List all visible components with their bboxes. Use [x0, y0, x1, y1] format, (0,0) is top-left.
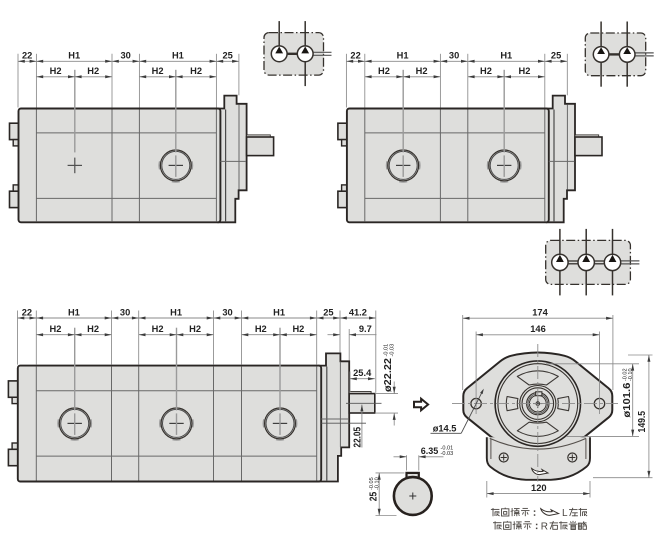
svg-text:-0.03: -0.03: [441, 451, 454, 457]
svg-text:9.7: 9.7: [359, 324, 372, 334]
svg-text:H2: H2: [378, 66, 390, 76]
svg-text:H2: H2: [50, 66, 62, 76]
svg-text:H1: H1: [500, 51, 512, 61]
svg-text:6.35: 6.35: [421, 446, 439, 456]
svg-text:H2: H2: [255, 324, 267, 334]
svg-text:H2: H2: [50, 324, 62, 334]
svg-text:H2: H2: [519, 66, 531, 76]
svg-text:H1: H1: [273, 307, 285, 317]
svg-text:41.2: 41.2: [349, 307, 367, 317]
svg-text:22: 22: [350, 51, 360, 61]
svg-text:120: 120: [531, 483, 547, 493]
svg-text:25.4: 25.4: [353, 368, 372, 378]
svg-text:25: 25: [223, 51, 233, 61]
svg-text:174: 174: [532, 308, 548, 318]
svg-text:H2: H2: [152, 66, 164, 76]
svg-text:30: 30: [120, 307, 130, 317]
svg-text:ø22.22: ø22.22: [383, 358, 394, 392]
svg-text:H1: H1: [170, 307, 182, 317]
svg-text:ø101.6: ø101.6: [622, 382, 633, 417]
svg-text:H1: H1: [68, 51, 80, 61]
svg-text:H2: H2: [480, 66, 492, 76]
svg-text:30: 30: [449, 51, 459, 61]
svg-text:149.5: 149.5: [637, 411, 648, 433]
svg-text:146: 146: [530, 324, 546, 334]
svg-text:22.05: 22.05: [353, 427, 364, 448]
svg-text:30: 30: [222, 307, 232, 317]
svg-text:25: 25: [369, 491, 380, 501]
svg-text:-0.03: -0.03: [389, 344, 395, 357]
svg-text:H1: H1: [68, 307, 80, 317]
svg-text:H2: H2: [189, 324, 201, 334]
svg-text:ø14.5: ø14.5: [433, 424, 457, 434]
svg-text:H2: H2: [190, 66, 202, 76]
svg-text:22: 22: [22, 51, 32, 61]
svg-text:H2: H2: [152, 324, 164, 334]
svg-text:R: R: [541, 522, 548, 533]
svg-text:-0.10: -0.10: [628, 368, 634, 381]
svg-text:30: 30: [121, 51, 131, 61]
svg-text:H2: H2: [87, 324, 99, 334]
svg-text:25: 25: [551, 51, 561, 61]
svg-text:H2: H2: [416, 66, 428, 76]
svg-text:22: 22: [22, 307, 32, 317]
svg-text:H1: H1: [172, 51, 184, 61]
svg-text:L: L: [562, 508, 568, 519]
svg-text:25: 25: [323, 307, 333, 317]
svg-text:H2: H2: [292, 324, 304, 334]
svg-text:H1: H1: [397, 51, 409, 61]
svg-text:H2: H2: [87, 66, 99, 76]
svg-text:-0.10: -0.10: [375, 477, 381, 490]
